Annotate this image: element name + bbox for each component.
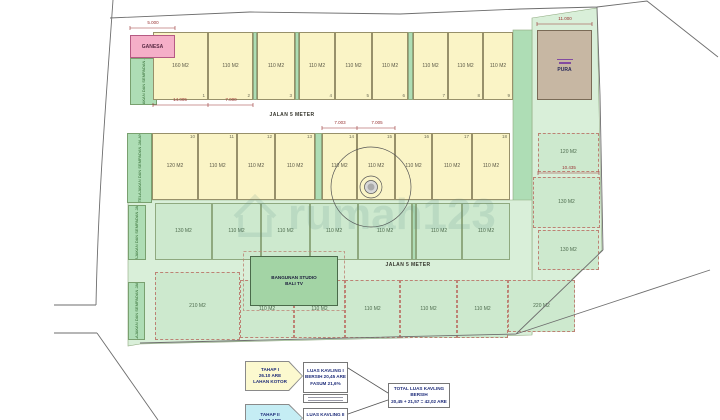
total-kavling-box: TOTAL LUAS KAVLING BERSIH 20,45 + 21,57 …	[388, 383, 450, 408]
tahap1-box-fill: TAHAP I 26.10 ARE LAHAN KOTOR	[246, 362, 302, 390]
plot-area-label: 110 M2	[287, 164, 303, 169]
plot-area-label: 110 M2	[345, 64, 361, 69]
plot-area-label: 110 M2	[422, 64, 438, 69]
plot-rowB-2: 110 M211	[198, 133, 237, 200]
plot-area-label: 110 M2	[326, 229, 342, 234]
plot-rowA-2: 110 M22	[208, 32, 253, 100]
plot-area-label: 160 M2	[172, 64, 189, 69]
plot-rowD-1: 210 M2	[155, 272, 240, 340]
plot-rowC-3: 110 M2	[261, 203, 310, 260]
pura-label: PURA	[557, 67, 571, 73]
plot-area-label: 220 M2	[533, 304, 550, 309]
plot-area-label: 210 M2	[189, 304, 206, 309]
plot-rowD-7: 220 M2	[508, 280, 575, 332]
plot-area-label: 110 M2	[474, 307, 490, 312]
green-divider	[315, 133, 322, 200]
footnote-bar	[308, 400, 343, 401]
plot-number: 10	[190, 135, 195, 140]
plot-area-label: 110 M2	[277, 229, 293, 234]
kavling1-box: LUAS KAVLING I BERSIH 20,45 ARE FASUM 21…	[303, 362, 348, 393]
plot-rowB-7: 110 M216	[395, 133, 432, 200]
plot-colR-2: 130 M2	[533, 177, 600, 228]
road-label-top: JALAN 5 METER	[262, 113, 322, 118]
plot-area-label: 120 M2	[167, 164, 184, 169]
plot-area-label: 130 M2	[175, 229, 192, 234]
plot-number: 17	[464, 135, 469, 140]
plot-area-label: 110 M2	[268, 64, 284, 69]
plot-area-label: 110 M2	[364, 307, 380, 312]
plot-rowB-4: 110 M213	[275, 133, 315, 200]
kavling1-footnote	[303, 394, 348, 403]
plot-rowB-9: 110 M218	[472, 133, 510, 200]
plot-area-label: 110 M2	[444, 164, 460, 169]
plot-area-label: 110 M2	[331, 164, 347, 169]
ganesa-label: GANESA	[142, 44, 163, 50]
plot-number: 12	[267, 135, 272, 140]
plot-number: 7	[442, 94, 445, 99]
pura-note-marks	[557, 59, 573, 61]
green-divider	[253, 32, 257, 100]
plot-number: 13	[307, 135, 312, 140]
plot-rowB-3: 110 M212	[237, 133, 275, 200]
plot-rowA-9: 110 M29	[483, 32, 513, 100]
plot-rowB-1: 120 M210	[152, 133, 198, 200]
plot-number: 14	[349, 135, 354, 140]
green-divider	[408, 32, 413, 100]
plot-rowC-1: 130 M2	[155, 203, 212, 260]
dimension-label: 7.005	[362, 121, 392, 126]
plot-area-label: 110 M2	[457, 64, 473, 69]
plot-area-label: 110 M2	[377, 229, 393, 234]
plot-rowC-2: 110 M2	[212, 203, 261, 260]
plot-rowB-6: 110 M215	[357, 133, 395, 200]
plot-area-label: 110 M2	[309, 64, 325, 69]
plot-rowC-4: 110 M2	[310, 203, 358, 260]
ganesa-plot: GANESA	[130, 35, 175, 58]
plot-number: 2	[247, 94, 250, 99]
plot-number: 6	[402, 94, 405, 99]
dimension-label: 5.000	[138, 21, 168, 26]
plot-area-label: 110 M2	[405, 164, 421, 169]
plot-number: 9	[507, 94, 510, 99]
plot-rowA-7: 110 M27	[413, 32, 448, 100]
pura-note-marks	[559, 62, 571, 64]
plot-rowD-5: 110 M2	[400, 280, 457, 338]
plot-area-label: 110 M2	[382, 64, 398, 69]
plot-area-label: 110 M2	[368, 164, 384, 169]
dimension-label: 14.005	[165, 98, 195, 103]
dimension-label: 10.435	[554, 166, 584, 171]
plot-rowD-4: 110 M2	[345, 280, 400, 338]
kavling2-box: LUAS KAVLING II	[303, 408, 348, 420]
plot-rowA-3: 110 M23	[257, 32, 295, 100]
dimension-label: 7.003	[325, 121, 355, 126]
kavling2-line1: LUAS KAVLING II	[304, 412, 347, 418]
plot-area-label: 130 M2	[560, 248, 577, 253]
plot-rowA-4: 110 M24	[299, 32, 335, 100]
plot-area-label: 130 M2	[558, 200, 575, 205]
plot-area-label: 110 M2	[483, 164, 499, 169]
plots-container: 160 M21110 M22110 M23110 M24110 M25110 M…	[0, 0, 720, 420]
dimension-label: 11.000	[550, 17, 580, 22]
plot-rowC-7: 110 M2	[462, 203, 510, 260]
plot-rowA-5: 110 M25	[335, 32, 372, 100]
plot-number: 1	[202, 94, 205, 99]
studio-label-line2: BALI TV	[285, 281, 303, 287]
kavling1-line3: FASUM 21,6%	[304, 381, 347, 387]
plot-number: 3	[289, 94, 292, 99]
pura-plot: PURA	[537, 30, 592, 100]
plot-number: 18	[502, 135, 507, 140]
green-divider	[295, 32, 299, 100]
plot-area-label: 110 M2	[420, 307, 436, 312]
plot-number: 11	[229, 135, 234, 140]
tahap1-line3: LAHAN KOTOR	[246, 379, 294, 385]
plot-rowA-8: 110 M28	[448, 32, 483, 100]
plot-area-label: 110 M2	[431, 229, 447, 234]
plot-rowC-5: 110 M2	[358, 203, 412, 260]
plot-rowC-6: 110 M2	[416, 203, 462, 260]
plot-area-label: 110 M2	[222, 64, 238, 69]
plot-area-label: 120 M2	[560, 150, 577, 155]
plot-area-label: 110 M2	[490, 64, 506, 69]
plot-area-label: 110 M2	[209, 164, 225, 169]
plot-number: 8	[477, 94, 480, 99]
studio-building: BANGUNAN STUDIO BALI TV	[250, 256, 338, 306]
plot-area-label: 110 M2	[311, 307, 327, 312]
plot-number: 4	[329, 94, 332, 99]
plot-number: 5	[366, 94, 369, 99]
plot-rowD-6: 110 M2	[457, 280, 508, 338]
plot-rowB-5: 110 M214	[322, 133, 357, 200]
plot-number: 15	[387, 135, 392, 140]
plot-colR-3: 130 M2	[538, 230, 599, 270]
plot-number: 16	[424, 135, 429, 140]
plot-rowB-8: 110 M217	[432, 133, 472, 200]
footnote-bar	[308, 397, 343, 398]
dimension-label: 7.000	[216, 98, 246, 103]
green-divider	[412, 203, 416, 260]
plot-area-label: 110 M2	[228, 229, 244, 234]
plot-rowA-6: 110 M26	[372, 32, 408, 100]
plot-area-label: 110 M2	[248, 164, 264, 169]
road-label-lower: JALAN 5 METER	[378, 263, 438, 268]
site-plan: TELAJAKAN DAN SEMPADAN JALAN TELAJAKAN D…	[0, 0, 720, 420]
plot-area-label: 110 M2	[259, 307, 275, 312]
total-line3: 20,45 + 21,57 = 42,02 ARE	[389, 399, 449, 405]
plot-area-label: 110 M2	[478, 229, 494, 234]
